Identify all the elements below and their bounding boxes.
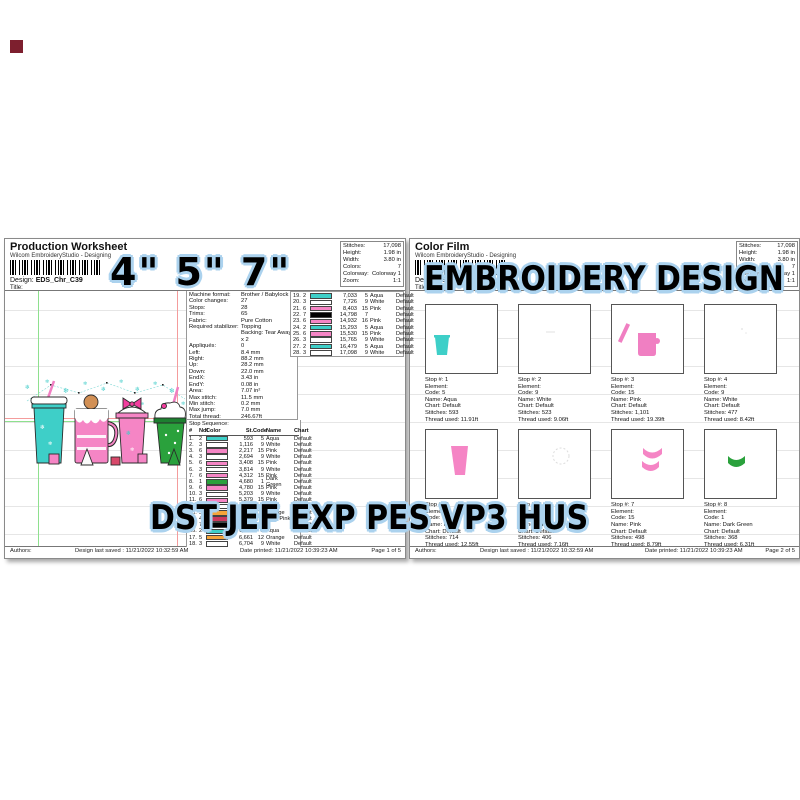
overlay-formats-text: DST JEF EXP PES VP3 HUS: [150, 499, 588, 538]
film-chart: Chart: Default: [611, 529, 684, 536]
stop-number: 6.: [189, 467, 199, 473]
film-stop-box: [425, 304, 498, 374]
machine-info-row: Backing: Tear Away x 2: [189, 330, 295, 343]
stop-needle: 3: [199, 442, 206, 448]
stat-value: 17,098: [777, 243, 795, 250]
film-color-name: Name: Pink: [611, 397, 684, 404]
film-stitches: Stitches: 593: [425, 410, 498, 417]
svg-text:❄: ❄: [40, 424, 45, 431]
stop-color-name: Pink: [264, 485, 294, 491]
stop-stitches: 7,033: [334, 293, 357, 299]
stop-code: 9: [357, 350, 368, 356]
col-chart: Chart: [294, 428, 309, 435]
stop-color-name: White: [264, 491, 294, 497]
stop-needle: 3: [303, 299, 310, 305]
page-footer: Authors: Design last saved : 11/21/2022 …: [410, 548, 799, 557]
svg-text:❄: ❄: [45, 379, 49, 385]
stop-table-header: # Ndl Color St. Code Name Chart: [189, 428, 299, 436]
stat-row: Zoom: 1:1: [343, 278, 401, 285]
stop-row: 18. 3 6,704 9 White Default: [189, 541, 299, 547]
stop-chart: Default: [294, 460, 312, 466]
film-stop-card: Stop #: 2 Element: Code: 9 Name: White C…: [518, 304, 591, 423]
stop-code: 9: [253, 467, 264, 473]
stop-needle: 6: [199, 473, 206, 479]
col-ndl: Ndl: [199, 428, 206, 435]
stat-row: Stitches: 17,098: [739, 243, 795, 250]
film-code: Code: 1: [704, 515, 777, 522]
film-code: Code: 9: [518, 390, 591, 397]
last-saved-text: Design last saved : 11/21/2022 10:32:59 …: [75, 548, 188, 554]
stat-row: Height: 1.98 in: [343, 250, 401, 257]
film-stitches: Stitches: 498: [611, 535, 684, 542]
stat-label: Stitches:: [739, 243, 761, 250]
stop-chart: Default: [294, 491, 312, 497]
stop-color-name: Pink: [264, 448, 294, 454]
stat-row: Stitches: 17,098: [343, 243, 401, 250]
stop-code: 9: [357, 337, 368, 343]
stop-number: 8.: [189, 479, 199, 485]
stat-value: 1:1: [393, 278, 401, 285]
stat-value: 17,098: [383, 243, 401, 250]
film-stop-card: Stop #: 4 Element: Code: 9 Name: White C…: [704, 304, 777, 423]
stop-number: 3.: [189, 448, 199, 454]
stop-number: 21.: [293, 306, 303, 312]
color-swatch: [206, 442, 230, 448]
color-swatch: [310, 306, 334, 312]
stop-number: 25.: [293, 331, 303, 337]
film-stop-number: Stop #: 4: [704, 377, 777, 384]
stop-row: 6. 3 3,814 9 White Default: [189, 466, 299, 472]
page-number: Page 1 of 5: [371, 548, 401, 554]
design-name: EDS_Chr_C39: [36, 277, 83, 284]
stop-row: 24. 2 15,293 5 Aqua Default: [293, 324, 402, 330]
machine-info-table: Machine format: Brother / Babylock Color…: [186, 291, 298, 420]
stop-number: 1.: [189, 436, 199, 442]
film-code: Code: 9: [704, 390, 777, 397]
stop-row: 5. 6 3,408 15 Pink Default: [189, 460, 299, 466]
stop-chart: Default: [294, 467, 312, 473]
stat-label: Width:: [343, 257, 359, 264]
stop-chart: Default: [396, 299, 414, 305]
color-swatch: [310, 293, 334, 299]
stop-stitches: 15,293: [334, 325, 357, 331]
stop-color-name: Aqua: [264, 436, 294, 442]
stop-code: 15: [253, 473, 264, 479]
film-stop-card: Stop #: 7 Element: Code: 15 Name: Pink C…: [611, 429, 684, 548]
stop-color-name: White: [264, 467, 294, 473]
stop-chart: Default: [294, 479, 312, 485]
film-stop-box: [425, 429, 498, 499]
stop-code: 15: [253, 460, 264, 466]
color-swatch: [310, 331, 334, 337]
stop-number: 9.: [189, 485, 199, 491]
film-element: Element:: [611, 384, 684, 391]
stop-row: 4. 3 2,694 9 White Default: [189, 454, 299, 460]
stat-label: Zoom:: [343, 278, 359, 285]
stop-code: 5: [253, 436, 264, 442]
stop-chart: Default: [294, 473, 312, 479]
stat-label: Stitches:: [343, 243, 365, 250]
stop-row: 19. 2 7,033 5 Aqua Default: [293, 293, 402, 299]
stop-needle: 6: [199, 485, 206, 491]
film-stop-info: Stop #: 7 Element: Code: 15 Name: Pink C…: [611, 502, 684, 548]
film-chart: Chart: Default: [425, 403, 498, 410]
film-element: Element:: [425, 384, 498, 391]
stop-chart: Default: [396, 325, 414, 331]
color-swatch: [310, 325, 334, 331]
stop-needle: 3: [303, 337, 310, 343]
date-printed-text: Date printed: 11/21/2022 10:39:23 AM: [240, 548, 338, 554]
machine-info-label: [189, 330, 241, 343]
stop-stitches: 3,408: [230, 460, 253, 466]
col-color: Color: [206, 428, 230, 435]
film-element: Element:: [704, 509, 777, 516]
stop-stitches: 1,116: [230, 442, 253, 448]
svg-text:❄: ❄: [25, 384, 30, 391]
film-stitches: Stitches: 477: [704, 410, 777, 417]
stop-stitches: 4,780: [230, 485, 253, 491]
stop-stitches: 593: [230, 436, 253, 442]
color-swatch: [310, 312, 334, 318]
stop-needle: 3: [199, 454, 206, 460]
stop-row: 10. 3 5,203 9 White Default: [189, 491, 299, 497]
stop-chart: Default: [294, 541, 312, 547]
film-color-name: Name: White: [704, 397, 777, 404]
stop-color-name: White: [368, 350, 396, 356]
stat-label: Colors:: [343, 264, 361, 271]
svg-text:❄: ❄: [83, 381, 87, 387]
color-swatch: [206, 479, 230, 485]
page-title: Color Film: [415, 241, 469, 253]
stop-number: 5.: [189, 460, 199, 466]
film-code: Code: 15: [611, 515, 684, 522]
film-code: Code: 15: [611, 390, 684, 397]
svg-text:❄: ❄: [135, 386, 140, 393]
color-swatch: [206, 461, 230, 467]
film-color-name: Name: Pink: [611, 522, 684, 529]
stop-row: 9. 6 4,780 15 Pink Default: [189, 485, 299, 491]
svg-text:❄: ❄: [48, 441, 52, 447]
svg-text:❄: ❄: [126, 430, 131, 437]
color-swatch: [206, 541, 230, 547]
stop-row: 8. 1 4,680 1 Dark Green Default: [189, 479, 299, 485]
stop-needle: 6: [199, 448, 206, 454]
authors-label: Authors:: [10, 548, 32, 554]
stat-value: 7: [398, 264, 401, 271]
film-color-name: Name: Dark Green: [704, 522, 777, 529]
overlay-title-text: EMBROIDERY DESIGN: [424, 260, 784, 299]
stop-code: 5: [357, 325, 368, 331]
stop-needle: 6: [303, 318, 310, 324]
stop-sequence-continued: 19. 2 7,033 5 Aqua Default 20. 3 7,726 9…: [290, 291, 404, 357]
stop-color-name: Pink: [264, 460, 294, 466]
stop-code: 15: [357, 331, 368, 337]
stop-row: 27. 2 16,479 5 Aqua Default: [293, 343, 402, 349]
stop-code: 9: [253, 454, 264, 460]
date-printed-text: Date printed: 11/21/2022 10:39:23 AM: [645, 548, 743, 554]
stop-code: 9: [253, 491, 264, 497]
stop-stitches: 8,403: [334, 306, 357, 312]
stop-color-name: Aqua: [368, 293, 396, 299]
film-stop-info: Stop #: 4 Element: Code: 9 Name: White C…: [704, 377, 777, 423]
col-st: St.: [230, 428, 253, 435]
film-element: Element:: [704, 384, 777, 391]
stop-code: 15: [357, 306, 368, 312]
film-stop-number: Stop #: 7: [611, 502, 684, 509]
film-element: Element:: [611, 509, 684, 516]
stop-needle: 3: [199, 491, 206, 497]
film-stop-info: Stop #: 1 Element: Code: 5 Name: Aqua Ch…: [425, 377, 498, 423]
film-stitches: Stitches: 368: [704, 535, 777, 542]
stop-stitches: 15,765: [334, 337, 357, 343]
film-stop-info: Stop #: 3 Element: Code: 15 Name: Pink C…: [611, 377, 684, 423]
film-stop-number: Stop #: 8: [704, 502, 777, 509]
stat-label: Height:: [739, 250, 757, 257]
film-thread-used: Thread used: 8.42ft: [704, 417, 777, 424]
film-color-name: Name: White: [518, 397, 591, 404]
design-name-line: Design: EDS_Chr_C39: [10, 277, 83, 284]
stop-chart: Default: [396, 350, 414, 356]
stop-stitches: 14,798: [334, 312, 357, 318]
stop-chart: Default: [396, 337, 414, 343]
film-element: Element:: [518, 384, 591, 391]
film-color-name: Name: Aqua: [425, 397, 498, 404]
stop-color-name: White: [368, 337, 396, 343]
stat-label: Colorway:: [343, 271, 369, 278]
stat-value: 7: [792, 264, 795, 271]
film-stop-box: [518, 304, 591, 374]
color-swatch: [206, 454, 230, 460]
film-stop-number: Stop #: 1: [425, 377, 498, 384]
film-stitches: Stitches: 523: [518, 410, 591, 417]
design-stats: Stitches: 17,098 Height: 1.98 in Width: …: [340, 241, 404, 287]
stop-color-name: White: [264, 454, 294, 460]
film-stop-card: Stop #: 3 Element: Code: 15 Name: Pink C…: [611, 304, 684, 423]
stop-number: 4.: [189, 454, 199, 460]
stop-code: 5: [357, 293, 368, 299]
page-footer: Authors: Design last saved : 11/21/2022 …: [5, 548, 405, 557]
design-label: Design:: [10, 277, 34, 284]
stop-needle: 2: [303, 325, 310, 331]
stop-needle: 1: [199, 479, 206, 485]
color-swatch: [206, 473, 230, 479]
stop-chart: Default: [396, 344, 414, 350]
stop-chart: Default: [396, 331, 414, 337]
stop-stitches: 14,932: [334, 318, 357, 324]
film-stop-box: [611, 304, 684, 374]
design-artwork-coffee-cups: ❄❄ ❄❄ ❄❄ ❄❄ ❄❄ ❄❄ ❄: [23, 373, 191, 473]
film-chart: Chart: Default: [704, 529, 777, 536]
col-code: Code: [253, 428, 264, 435]
app-name: Wilcom EmbroideryStudio - Designing: [415, 253, 516, 259]
stop-chart: Default: [294, 485, 312, 491]
stop-color-name: White: [368, 299, 396, 305]
color-swatch: [206, 492, 230, 498]
stop-row: 25. 6 15,530 15 Pink Default: [293, 331, 402, 337]
stop-needle: 3: [199, 541, 206, 547]
svg-text:❄: ❄: [169, 387, 175, 395]
film-thread-used: Thread used: 9.06ft: [518, 417, 591, 424]
stop-needle: 7: [303, 312, 310, 318]
stop-number: 19.: [293, 293, 303, 299]
stop-needle: 2: [303, 344, 310, 350]
film-stop-box: [518, 429, 591, 499]
film-chart: Chart: Default: [704, 403, 777, 410]
stop-needle: 3: [303, 350, 310, 356]
stop-code: 7: [357, 312, 368, 318]
color-swatch: [310, 337, 334, 343]
film-chart: Chart: Default: [518, 403, 591, 410]
stop-number: 24.: [293, 325, 303, 331]
stop-row: 23. 6 14,932 16 Pink Default: [293, 318, 402, 324]
film-thread-used: Thread used: 11.91ft: [425, 417, 498, 424]
stop-number: 2.: [189, 442, 199, 448]
stop-stitches: 4,680: [230, 479, 253, 485]
color-swatch: [310, 350, 334, 356]
stop-stitches: 4,312: [230, 473, 253, 479]
color-swatch: [206, 467, 230, 473]
film-stop-box: [704, 304, 777, 374]
stop-number: 26.: [293, 337, 303, 343]
stop-code: 5: [357, 344, 368, 350]
stat-value: 1.98 in: [778, 250, 795, 257]
film-thread-used: Thread used: 12.55ft: [425, 542, 498, 549]
stop-needle: 6: [303, 306, 310, 312]
stop-color-name: Aqua: [368, 325, 396, 331]
stop-code: 15: [253, 485, 264, 491]
stop-code: 1: [253, 479, 264, 485]
stop-number: 18.: [189, 541, 199, 547]
stop-chart: Default: [294, 442, 312, 448]
svg-text:❄: ❄: [141, 401, 145, 406]
col-num: #: [189, 428, 199, 435]
film-stop-info: Stop #: 2 Element: Code: 9 Name: White C…: [518, 377, 591, 423]
stop-code: 9: [357, 299, 368, 305]
color-swatch: [310, 300, 334, 306]
stop-code: 15: [253, 448, 264, 454]
color-swatch: [310, 344, 334, 350]
stop-row: 20. 3 7,726 9 White Default: [293, 299, 402, 305]
stop-row: 26. 3 15,765 9 White Default: [293, 337, 402, 343]
svg-text:❄: ❄: [181, 401, 185, 407]
film-stop-box: [611, 429, 684, 499]
stop-needle: 3: [199, 467, 206, 473]
barcode: [10, 260, 102, 275]
col-name: Name: [264, 428, 294, 435]
red-marker: [10, 40, 23, 53]
stop-row: 3. 6 2,217 15 Pink Default: [189, 448, 299, 454]
page-number: Page 2 of 5: [765, 548, 795, 554]
stop-needle: 2: [303, 293, 310, 299]
stat-value: 3.80 in: [384, 257, 401, 264]
film-stitches: Stitches: 1,101: [611, 410, 684, 417]
stop-number: 20.: [293, 299, 303, 305]
machine-info-value: Backing: Tear Away x 2: [241, 330, 295, 343]
film-chart: Chart: Default: [611, 403, 684, 410]
stop-stitches: 17,098: [334, 350, 357, 356]
last-saved-text: Design last saved : 11/21/2022 10:32:59 …: [480, 548, 593, 554]
stop-number: 23.: [293, 318, 303, 324]
stop-color-name: White: [264, 442, 294, 448]
stop-row: 1. 2 593 5 Aqua Default: [189, 436, 299, 442]
stop-stitches: 2,217: [230, 448, 253, 454]
stop-sequence-label: Stop Sequence:: [189, 421, 299, 428]
stop-needle: 2: [199, 436, 206, 442]
stat-row: Colorway: Colorway 1: [343, 271, 401, 278]
stop-color-name: White: [264, 541, 294, 547]
authors-label: Authors:: [415, 548, 437, 554]
stat-row: Height: 1.98 in: [739, 250, 795, 257]
app-name: Wilcom EmbroideryStudio - Designing: [10, 253, 111, 259]
stop-row: 2. 3 1,116 9 White Default: [189, 442, 299, 448]
stop-needle: 6: [303, 331, 310, 337]
film-thread-used: Thread used: 6.31ft: [704, 542, 777, 549]
stat-row: Colors: 7: [343, 264, 401, 271]
stop-color-name: Aqua: [368, 344, 396, 350]
stop-chart: Default: [396, 306, 414, 312]
svg-text:❄: ❄: [119, 379, 123, 385]
stop-stitches: 7,726: [334, 299, 357, 305]
film-thread-used: Thread used: 7.16ft: [518, 542, 591, 549]
stop-color-name: Pink: [368, 331, 396, 337]
stat-value: 1.98 in: [384, 250, 401, 257]
film-stop-info: Stop #: 8 Element: Code: 1 Name: Dark Gr…: [704, 502, 777, 548]
overlay-sizes-text: 4" 5" 7": [110, 250, 291, 294]
stop-chart: Default: [294, 454, 312, 460]
stop-number: 10.: [189, 491, 199, 497]
stop-chart: Default: [396, 318, 414, 324]
stop-row: 21. 6 8,403 15 Pink Default: [293, 306, 402, 312]
film-thread-used: Thread used: 8.79ft: [611, 542, 684, 549]
stop-chart: Default: [396, 293, 414, 299]
film-stop-card: Stop #: 1 Element: Code: 5 Name: Aqua Ch…: [425, 304, 498, 423]
stop-stitches: 3,814: [230, 467, 253, 473]
stop-needle: 6: [199, 460, 206, 466]
stop-stitches: 6,704: [230, 541, 253, 547]
stat-value: 1:1: [787, 278, 795, 285]
stop-chart: Default: [294, 436, 312, 442]
stop-chart: Default: [294, 448, 312, 454]
stop-number: 27.: [293, 344, 303, 350]
stop-color-name: Pink: [368, 306, 396, 312]
stop-number: 28.: [293, 350, 303, 356]
stop-chart: Default: [396, 312, 414, 318]
film-thread-used: Thread used: 19.39ft: [611, 417, 684, 424]
stop-code: 16: [357, 318, 368, 324]
stat-label: Height:: [343, 250, 361, 257]
stop-stitches: 5,203: [230, 491, 253, 497]
stop-code: 9: [253, 541, 264, 547]
svg-text:❄: ❄: [153, 381, 157, 387]
stop-code: 9: [253, 442, 264, 448]
film-stop-number: Stop #: 2: [518, 377, 591, 384]
color-swatch: [310, 319, 334, 325]
film-code: Code: 5: [425, 390, 498, 397]
color-swatch: [206, 436, 230, 442]
svg-text:❄: ❄: [63, 387, 69, 395]
stop-stitches: 16,479: [334, 344, 357, 350]
svg-text:❄: ❄: [101, 386, 106, 393]
film-stop-card: Stop #: 8 Element: Code: 1 Name: Dark Gr…: [704, 429, 777, 548]
stop-row: 28. 3 17,098 9 White Default: [293, 350, 402, 356]
stop-color-name: Pink: [368, 318, 396, 324]
color-swatch: [206, 448, 230, 454]
film-stop-box: [704, 429, 777, 499]
color-swatch: [206, 485, 230, 491]
stat-row: Width: 3.80 in: [343, 257, 401, 264]
svg-text:❄: ❄: [130, 447, 134, 453]
stop-number: 7.: [189, 473, 199, 479]
